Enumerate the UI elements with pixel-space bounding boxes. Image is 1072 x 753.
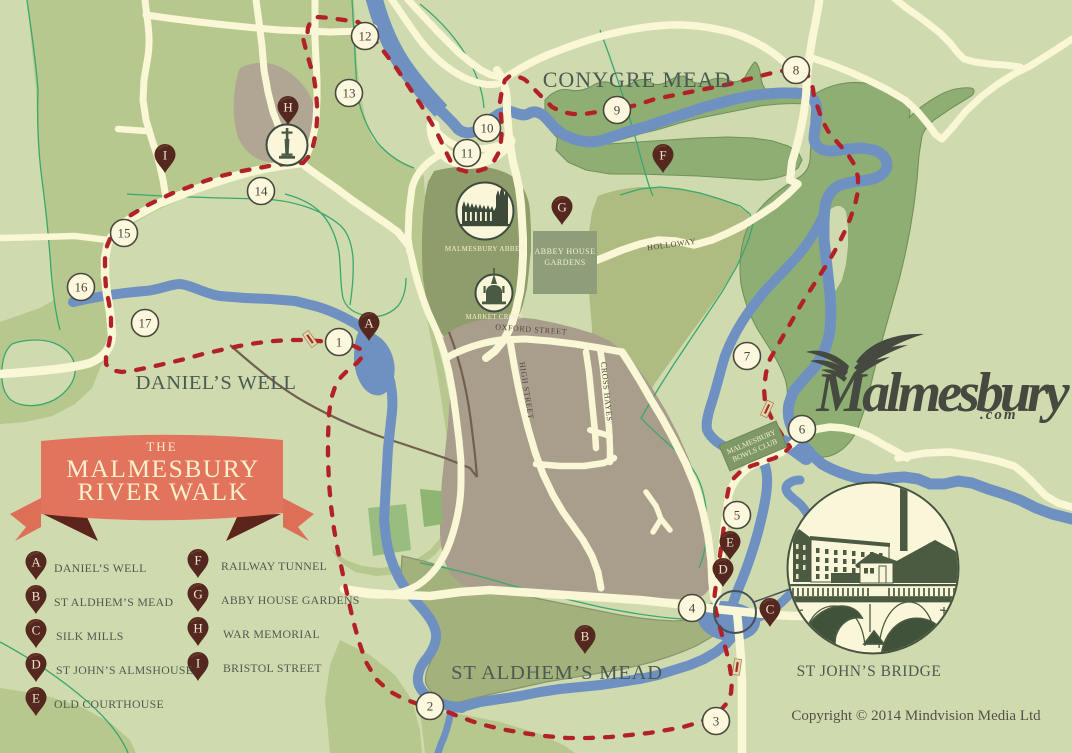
svg-text:15: 15	[118, 226, 131, 241]
svg-text:ST ALDHEM’S MEAD: ST ALDHEM’S MEAD	[54, 595, 173, 609]
svg-text:OLD COURTHOUSE: OLD COURTHOUSE	[54, 697, 164, 711]
svg-text:A: A	[31, 555, 41, 570]
svg-text:16: 16	[75, 280, 89, 295]
svg-text:I: I	[163, 148, 167, 163]
svg-text:RIVER WALK: RIVER WALK	[77, 477, 248, 506]
svg-text:E: E	[32, 691, 40, 706]
svg-text:ST JOHN’S ALMSHOUSE: ST JOHN’S ALMSHOUSE	[56, 663, 193, 677]
svg-text:CONYGRE MEAD: CONYGRE MEAD	[543, 67, 732, 92]
svg-text:SILK MILLS: SILK MILLS	[56, 629, 124, 643]
svg-text:13: 13	[343, 86, 356, 101]
svg-text:17: 17	[139, 316, 153, 331]
svg-text:12: 12	[359, 29, 372, 44]
svg-text:14: 14	[255, 184, 269, 199]
svg-text:H: H	[283, 100, 292, 115]
svg-text:B: B	[581, 629, 590, 644]
svg-text:H: H	[193, 621, 202, 636]
svg-text:F: F	[194, 553, 201, 568]
svg-text:ABBEY HOUSE: ABBEY HOUSE	[535, 247, 596, 256]
svg-text:I: I	[196, 656, 200, 671]
svg-text:8: 8	[793, 63, 800, 78]
svg-text:G: G	[193, 587, 202, 602]
svg-text:E: E	[726, 535, 734, 550]
svg-text:5: 5	[734, 508, 741, 523]
svg-text:B: B	[32, 589, 41, 604]
svg-text:1: 1	[336, 335, 343, 350]
svg-text:DANIEL’S WELL: DANIEL’S WELL	[54, 561, 147, 575]
svg-text:4: 4	[689, 601, 696, 616]
svg-text:RAILWAY TUNNEL: RAILWAY TUNNEL	[221, 559, 327, 573]
svg-text:GARDENS: GARDENS	[544, 258, 585, 267]
svg-text:11: 11	[461, 146, 474, 161]
svg-text:D: D	[31, 657, 40, 672]
svg-text:WAR MEMORIAL: WAR MEMORIAL	[223, 627, 320, 641]
svg-text:C: C	[32, 623, 41, 638]
svg-text:C: C	[766, 602, 775, 617]
svg-text:BRISTOL STREET: BRISTOL STREET	[223, 661, 322, 675]
svg-text:F: F	[659, 148, 666, 163]
svg-text:ABBY HOUSE GARDENS: ABBY HOUSE GARDENS	[221, 593, 360, 607]
svg-text:DANIEL’S WELL: DANIEL’S WELL	[136, 372, 297, 394]
svg-text:2: 2	[427, 699, 434, 714]
svg-text:Copyright © 2014 Mindvision Me: Copyright © 2014 Mindvision Media Ltd	[791, 708, 1041, 724]
svg-text:D: D	[718, 562, 727, 577]
svg-text:G: G	[557, 200, 566, 215]
svg-text:THE: THE	[146, 439, 177, 454]
svg-text:A: A	[364, 316, 374, 331]
svg-text:10: 10	[481, 121, 494, 136]
svg-text:MALMESBURY ABBEY: MALMESBURY ABBEY	[445, 245, 525, 253]
svg-text:MARKET CROSS: MARKET CROSS	[466, 313, 523, 321]
svg-text:3: 3	[713, 714, 720, 729]
svg-text:.com: .com	[980, 407, 1018, 423]
svg-text:Malmesbury: Malmesbury	[815, 362, 1070, 424]
svg-text:9: 9	[614, 103, 621, 118]
svg-text:6: 6	[799, 422, 806, 437]
svg-text:7: 7	[744, 349, 751, 364]
svg-text:ST ALDHEM’S MEAD: ST ALDHEM’S MEAD	[451, 662, 663, 684]
svg-text:ST JOHN’S BRIDGE: ST JOHN’S BRIDGE	[797, 663, 942, 680]
